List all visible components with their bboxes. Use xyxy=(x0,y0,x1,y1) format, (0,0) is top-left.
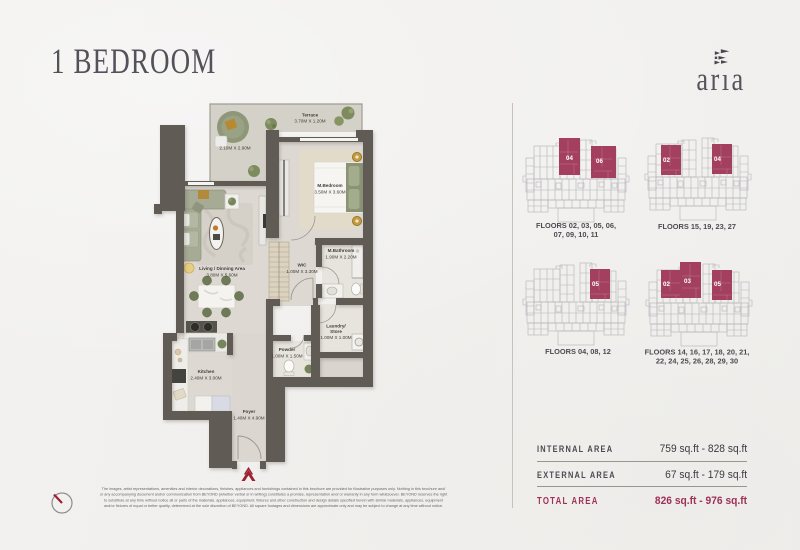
svg-text:02: 02 xyxy=(663,281,670,288)
svg-text:Kitchen: Kitchen xyxy=(198,369,215,374)
svg-text:07, 09, 10, 11: 07, 09, 10, 11 xyxy=(554,230,599,239)
svg-text:FLOORS 15, 19, 23, 27: FLOORS 15, 19, 23, 27 xyxy=(658,222,736,231)
svg-text:02: 02 xyxy=(663,157,670,164)
svg-text:Powder: Powder xyxy=(279,347,296,352)
svg-text:M.Bathroom: M.Bathroom xyxy=(328,248,355,253)
svg-text:FLOORS 14, 16, 17, 18, 20, 21,: FLOORS 14, 16, 17, 18, 20, 21, xyxy=(645,348,750,357)
svg-text:Living / Dinning Area: Living / Dinning Area xyxy=(199,266,245,271)
svg-text:1.00M X 3.30M: 1.00M X 3.30M xyxy=(286,269,317,274)
svg-text:2.40M X 3.00M: 2.40M X 3.00M xyxy=(190,376,221,381)
svg-text:03: 03 xyxy=(684,278,691,285)
svg-text:Foyer: Foyer xyxy=(243,409,256,414)
svg-text:05: 05 xyxy=(592,281,599,288)
svg-text:Store: Store xyxy=(330,329,342,334)
svg-text:Laundry/: Laundry/ xyxy=(326,324,346,329)
svg-text:3.80M X 5.60M: 3.80M X 5.60M xyxy=(206,273,237,278)
svg-text:Terrace: Terrace xyxy=(302,113,319,118)
svg-text:3.70M X 1.20M: 3.70M X 1.20M xyxy=(294,119,325,124)
svg-text:3.50M X 3.60M: 3.50M X 3.60M xyxy=(314,190,345,195)
svg-text:05: 05 xyxy=(714,281,721,288)
svg-text:FLOORS 02, 03, 05, 06,: FLOORS 02, 03, 05, 06, xyxy=(536,221,616,230)
svg-text:06: 06 xyxy=(596,158,603,165)
svg-text:WIC: WIC xyxy=(298,263,308,268)
svg-text:04: 04 xyxy=(714,156,721,163)
svg-text:M.Bedroom: M.Bedroom xyxy=(317,183,342,188)
svg-text:04: 04 xyxy=(566,155,573,162)
svg-text:2.10M X 2.90M: 2.10M X 2.90M xyxy=(219,146,250,151)
svg-text:1.90M X 2.20M: 1.90M X 2.20M xyxy=(325,255,356,260)
svg-text:1.40M X 4.90M: 1.40M X 4.90M xyxy=(233,416,264,421)
svg-text:FLOORS 04, 08, 12: FLOORS 04, 08, 12 xyxy=(545,347,611,356)
svg-text:1.00M X 1.00M: 1.00M X 1.00M xyxy=(320,335,351,340)
svg-text:1.00M X 1.50M: 1.00M X 1.50M xyxy=(271,354,302,359)
svg-text:22, 24, 25, 26, 28, 29, 30: 22, 24, 25, 26, 28, 29, 30 xyxy=(656,357,738,366)
